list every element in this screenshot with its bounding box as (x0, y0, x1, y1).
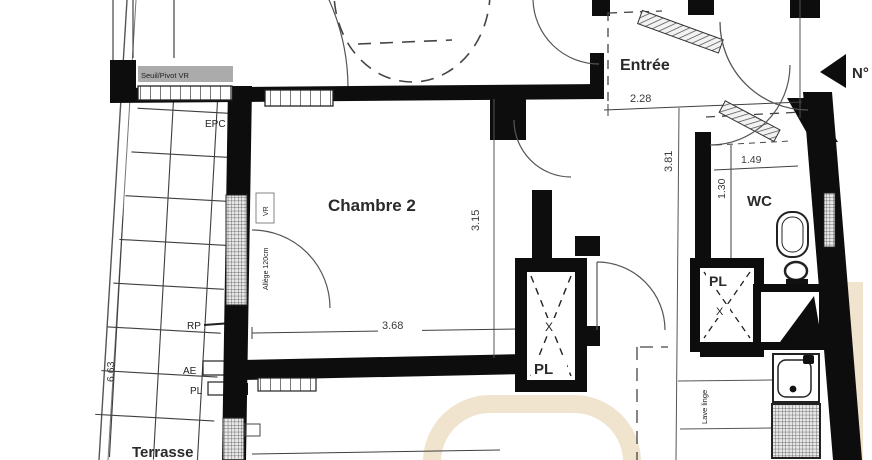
dim-terrasse: 6.63 (105, 361, 117, 382)
closet-hall-label: PL (534, 361, 553, 378)
door-arc-entrance (720, 22, 808, 110)
label-ae: AE (183, 366, 197, 377)
closet-hall: X PL (515, 258, 587, 392)
entrance-door-leaf (638, 10, 724, 53)
dim-wc-width: 1.49 (741, 154, 762, 166)
appliance-icon (772, 404, 820, 458)
sink-icon (773, 354, 819, 402)
window-chambre2-west (226, 195, 247, 305)
dim-wc-depth: 1.30 (716, 178, 728, 199)
upper-room-fragment: Seuil/Pivot VR (110, 0, 348, 90)
closet-hall-x: X (545, 320, 553, 334)
entree-area: Entrée 2.28 (604, 0, 808, 118)
radiator-sejour (258, 378, 316, 391)
shower-icon (757, 288, 823, 346)
closet-kitchen-label: PL (709, 273, 727, 289)
label-washing-machine: Lave linge (700, 390, 709, 424)
label-rp: RP (187, 321, 201, 332)
kitchen-area: PL X Lave linge (678, 258, 823, 458)
arrow-left-icon (820, 54, 846, 88)
label-pl-small: PL (190, 386, 203, 397)
floor-plan-drawing: 6.63 EPC RP AE PL Terrasse Seuil/Pivot V… (0, 0, 872, 460)
door-arc-corridor-top (533, 0, 599, 64)
door-arc-sejour (597, 262, 665, 330)
label-north: N° (852, 65, 869, 82)
wall-jamb-hall-1 (575, 236, 600, 256)
washbasin-icon (785, 262, 808, 286)
floor-plan: 6.63 EPC RP AE PL Terrasse Seuil/Pivot V… (0, 0, 872, 460)
furniture-symbol (245, 424, 260, 436)
label-shutter-vr: VR (263, 206, 270, 216)
dashed-table-outline (334, 0, 490, 82)
label-sill-height: Allège 120cm (263, 247, 270, 290)
radiator-chambre2 (265, 90, 333, 106)
north-entry-marker: N° (820, 54, 869, 88)
dim-entree-width: 2.28 (630, 93, 651, 105)
wall-chambre2-south (240, 354, 528, 380)
room-label-wc: WC (747, 193, 772, 210)
wall-jamb-chambre2-door (490, 99, 526, 140)
label-epc: EPC (205, 119, 226, 130)
room-label-entree: Entrée (620, 57, 670, 74)
dim-chambre2-depth: 3.15 (470, 210, 482, 231)
wc-door-leaf (719, 101, 780, 142)
label-window-note: Seuil/Pivot VR (141, 71, 190, 80)
room-label-chambre2: Chambre 2 (328, 196, 416, 215)
dim-hall-depth: 3.81 (663, 151, 675, 172)
closet-kitchen-x: X (716, 306, 724, 318)
dim-chambre2-width: 3.68 (382, 320, 403, 332)
toilet-icon (777, 212, 808, 257)
vent-duct (824, 193, 835, 247)
room-label-terrasse: Terrasse (132, 444, 193, 460)
window-upper-left (138, 86, 232, 100)
window-terrace-south (223, 418, 244, 460)
wall-hall-west (532, 190, 552, 260)
